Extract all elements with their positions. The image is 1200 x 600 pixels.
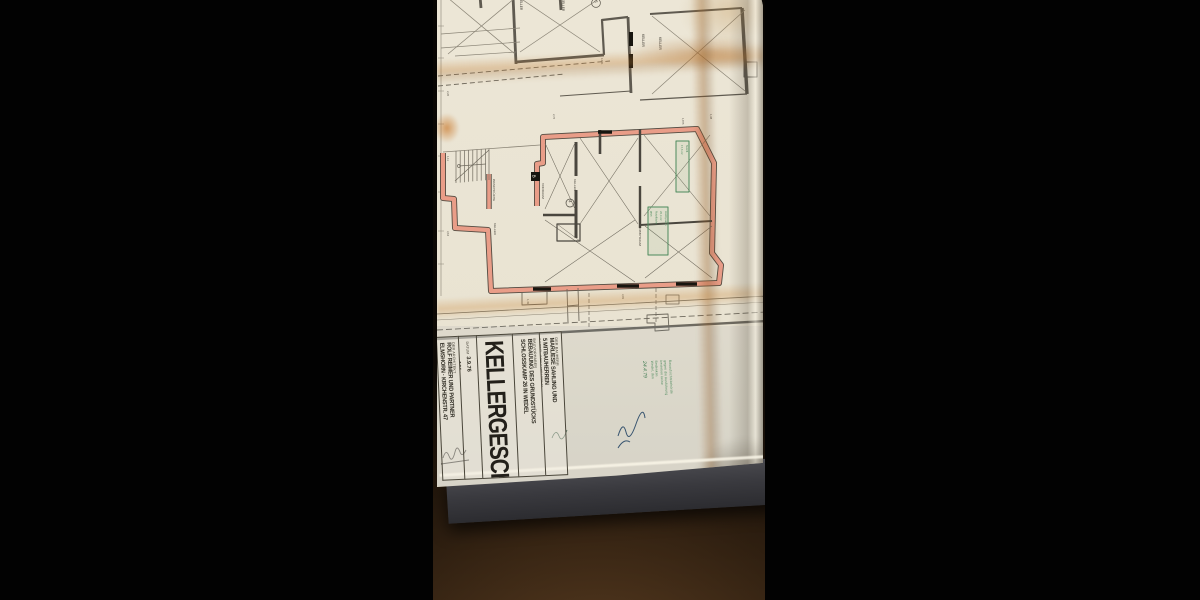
green-box-text: 26,4 m² xyxy=(659,211,663,221)
plan-number-label: PLAN NR. xyxy=(458,342,460,359)
dimension-text: 2,76 xyxy=(552,114,556,120)
dimension-text: 3,64 xyxy=(446,231,450,237)
title-block: DER ARCHITEKT ROLF REIMER UND PARTNER EL… xyxy=(435,330,569,480)
room-label: WASCHKÜCHE xyxy=(492,179,496,201)
letterbox-right xyxy=(765,0,1200,600)
dimension-text: 1,11 xyxy=(446,156,450,161)
green-box-text: Nutzfl. xyxy=(685,145,689,153)
screenshot-root: { "colors": { "background": "#020202", "… xyxy=(0,0,1200,600)
room-label: KELLER xyxy=(493,223,497,236)
green-box-text: Nutzfläche xyxy=(654,211,658,225)
room-label: B xyxy=(532,175,537,178)
room-label: HOBBYRAUM xyxy=(638,226,642,246)
room-label: 4 xyxy=(568,200,573,203)
green-box-text: gepr. xyxy=(650,211,654,217)
approval-stamp-lines: Bauaufsichtsbehördegegen die Ausführungb… xyxy=(649,360,676,450)
approval-stamp: Bauaufsichtsbehördegegen die Ausführungb… xyxy=(618,357,678,451)
date-label: DATUM xyxy=(465,341,470,354)
letterbox-left xyxy=(0,0,433,600)
room-label: VORRAUM xyxy=(541,183,545,199)
dimension-text: 2,26 xyxy=(446,91,450,97)
room-label: 6 xyxy=(594,0,599,3)
room-label: KELLER xyxy=(561,0,565,12)
green-box-text: 17,6 m² xyxy=(680,145,684,155)
dimension-text: 3,99 xyxy=(621,294,625,300)
date-value: 3.9.76 xyxy=(465,356,472,372)
dimension-text: 14,61 xyxy=(600,58,604,65)
photo-of-blueprint: KELLERKELLER6KELLERKELLERWASCHKÜCHEVORRA… xyxy=(433,0,765,600)
dimension-text: 1,38 xyxy=(709,114,713,120)
room-label: KELLER xyxy=(658,37,662,51)
dimension-text: 1,49 xyxy=(526,299,530,305)
drawing-title: KELLERGESCHOSS xyxy=(478,340,514,449)
room-label: KELLER xyxy=(641,34,645,48)
room-label: KELLER xyxy=(573,179,577,192)
dimension-text: 1,875 xyxy=(681,118,685,125)
green-box-text: Hobbyraum xyxy=(664,211,668,226)
room-label: KELLER xyxy=(519,0,523,11)
plan-number-value: 101 xyxy=(458,361,462,371)
